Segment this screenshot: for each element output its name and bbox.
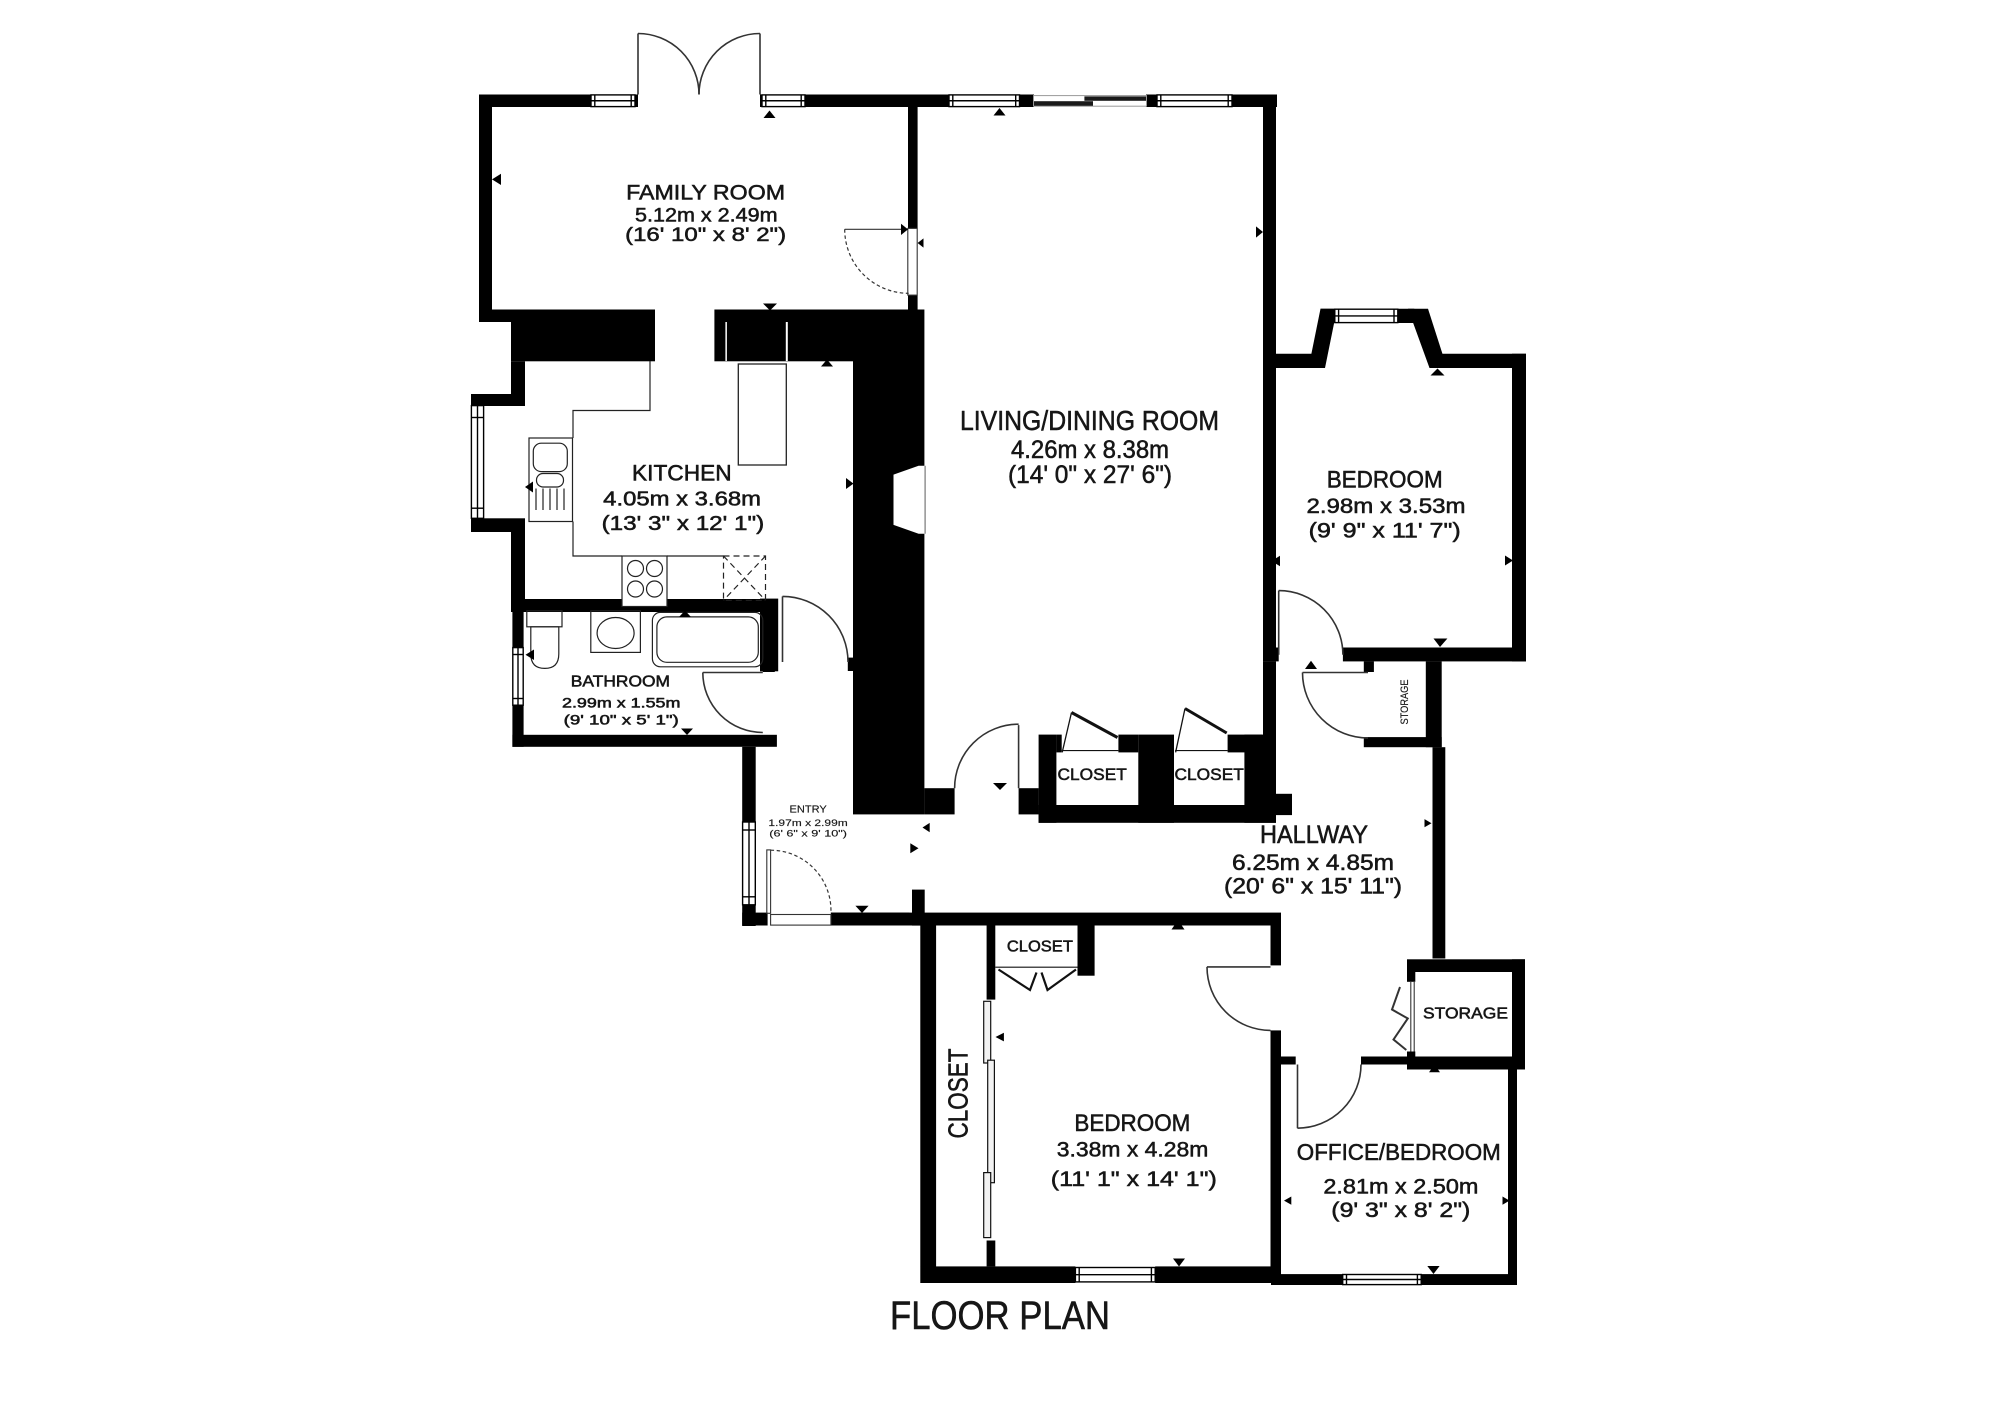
svg-text:FLOOR PLAN: FLOOR PLAN: [890, 1294, 1110, 1338]
svg-text:HALLWAY: HALLWAY: [1260, 821, 1368, 849]
svg-text:FAMILY ROOM: FAMILY ROOM: [626, 181, 785, 205]
svg-text:KITCHEN: KITCHEN: [632, 461, 732, 486]
svg-text:3.38m x 4.28m: 3.38m x 4.28m: [1057, 1138, 1209, 1162]
svg-text:1.97m x 2.99m: 1.97m x 2.99m: [768, 818, 848, 828]
svg-text:(11' 1" x 14' 1"): (11' 1" x 14' 1"): [1051, 1167, 1217, 1191]
svg-text:ENTRY: ENTRY: [790, 803, 827, 815]
svg-text:STORAGE: STORAGE: [1399, 680, 1411, 725]
svg-text:(6' 6" x 9' 10"): (6' 6" x 9' 10"): [769, 829, 847, 839]
svg-text:(9' 10" x 5' 1"): (9' 10" x 5' 1"): [564, 713, 679, 728]
svg-text:4.05m x 3.68m: 4.05m x 3.68m: [603, 489, 761, 511]
svg-text:(9' 3" x 8' 2"): (9' 3" x 8' 2"): [1331, 1199, 1470, 1222]
svg-text:STORAGE: STORAGE: [1423, 1006, 1508, 1023]
svg-text:(14' 0" x 27' 6"): (14' 0" x 27' 6"): [1008, 461, 1172, 489]
svg-text:CLOSET: CLOSET: [943, 1049, 974, 1139]
svg-text:2.81m x 2.50m: 2.81m x 2.50m: [1323, 1176, 1478, 1199]
svg-text:CLOSET: CLOSET: [1007, 939, 1073, 956]
svg-text:2.98m x 3.53m: 2.98m x 3.53m: [1307, 495, 1466, 518]
svg-text:4.26m x 8.38m: 4.26m x 8.38m: [1011, 436, 1169, 464]
svg-text:(13' 3" x 12' 1"): (13' 3" x 12' 1"): [602, 513, 765, 535]
svg-text:BEDROOM: BEDROOM: [1327, 466, 1443, 493]
svg-text:BEDROOM: BEDROOM: [1074, 1110, 1190, 1137]
svg-text:(20' 6" x 15' 11"): (20' 6" x 15' 11"): [1224, 874, 1402, 899]
svg-text:LIVING/DINING ROOM: LIVING/DINING ROOM: [960, 405, 1219, 436]
svg-text:OFFICE/BEDROOM: OFFICE/BEDROOM: [1297, 1139, 1501, 1165]
svg-text:CLOSET: CLOSET: [1175, 765, 1244, 784]
svg-text:(9' 9" x 11' 7"): (9' 9" x 11' 7"): [1309, 520, 1461, 543]
svg-text:(16' 10" x 8' 2"): (16' 10" x 8' 2"): [625, 224, 786, 246]
svg-text:6.25m x 4.85m: 6.25m x 4.85m: [1232, 850, 1394, 875]
svg-text:BATHROOM: BATHROOM: [571, 673, 670, 690]
svg-text:2.99m x 1.55m: 2.99m x 1.55m: [562, 695, 680, 710]
svg-text:CLOSET: CLOSET: [1058, 765, 1127, 784]
